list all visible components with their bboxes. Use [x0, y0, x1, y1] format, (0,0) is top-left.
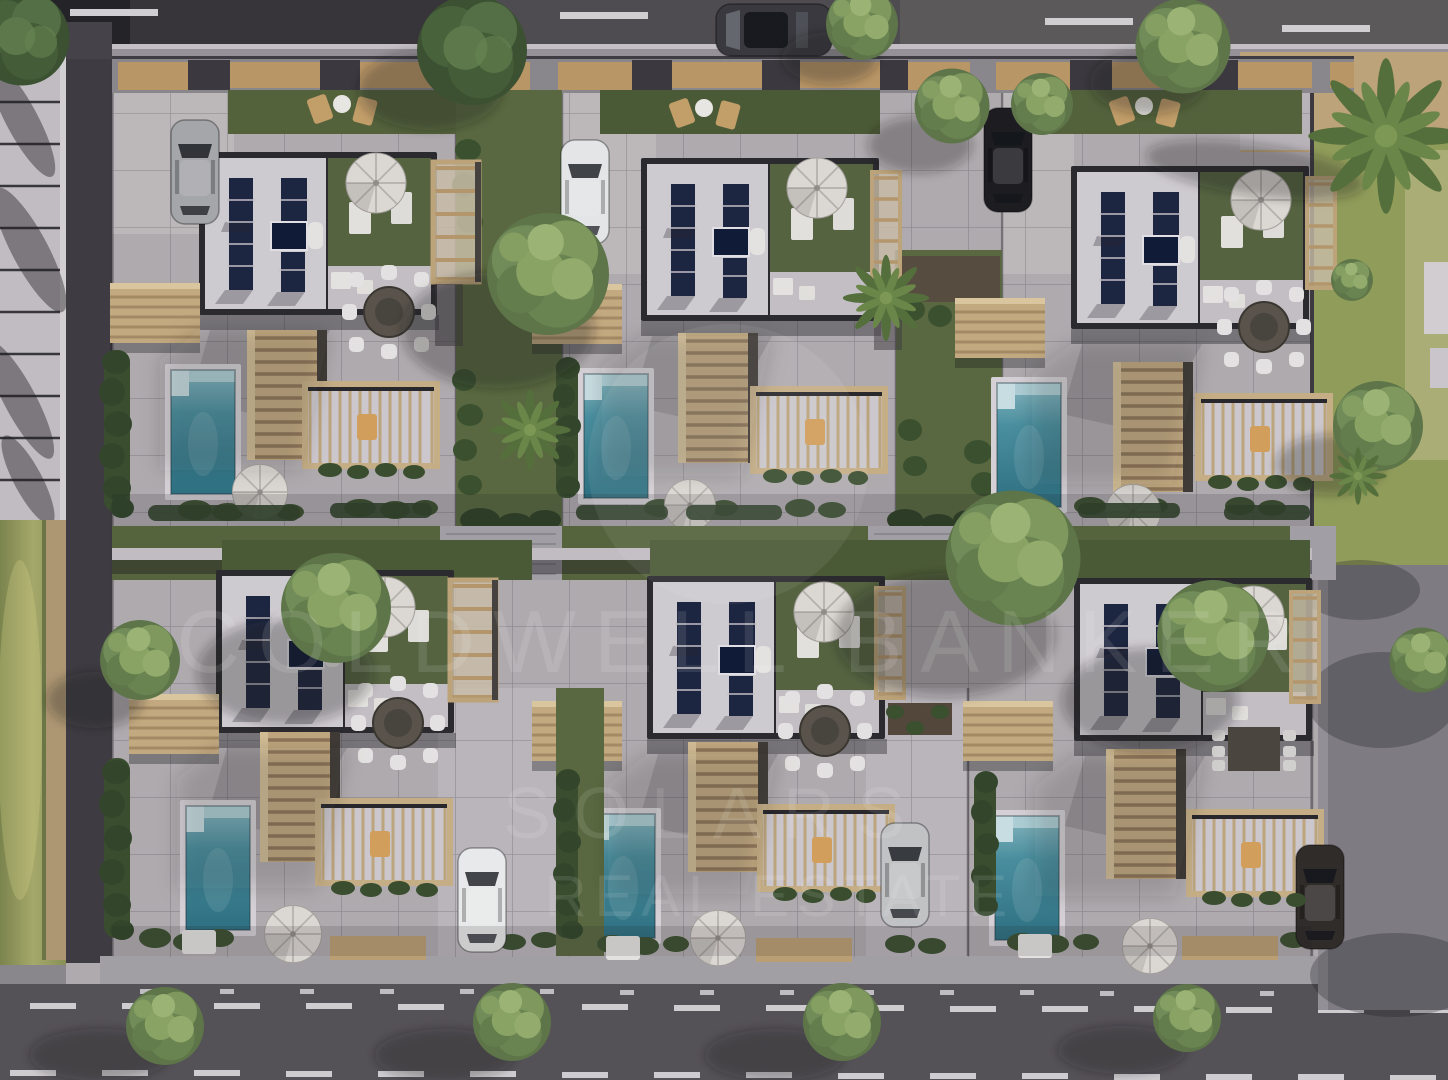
svg-text:COLDWELL BANKER: COLDWELL BANKER: [176, 592, 1313, 691]
svg-text:SOLARS: SOLARS: [503, 774, 927, 854]
svg-text:REAL ESTATE: REAL ESTATE: [545, 864, 1015, 929]
